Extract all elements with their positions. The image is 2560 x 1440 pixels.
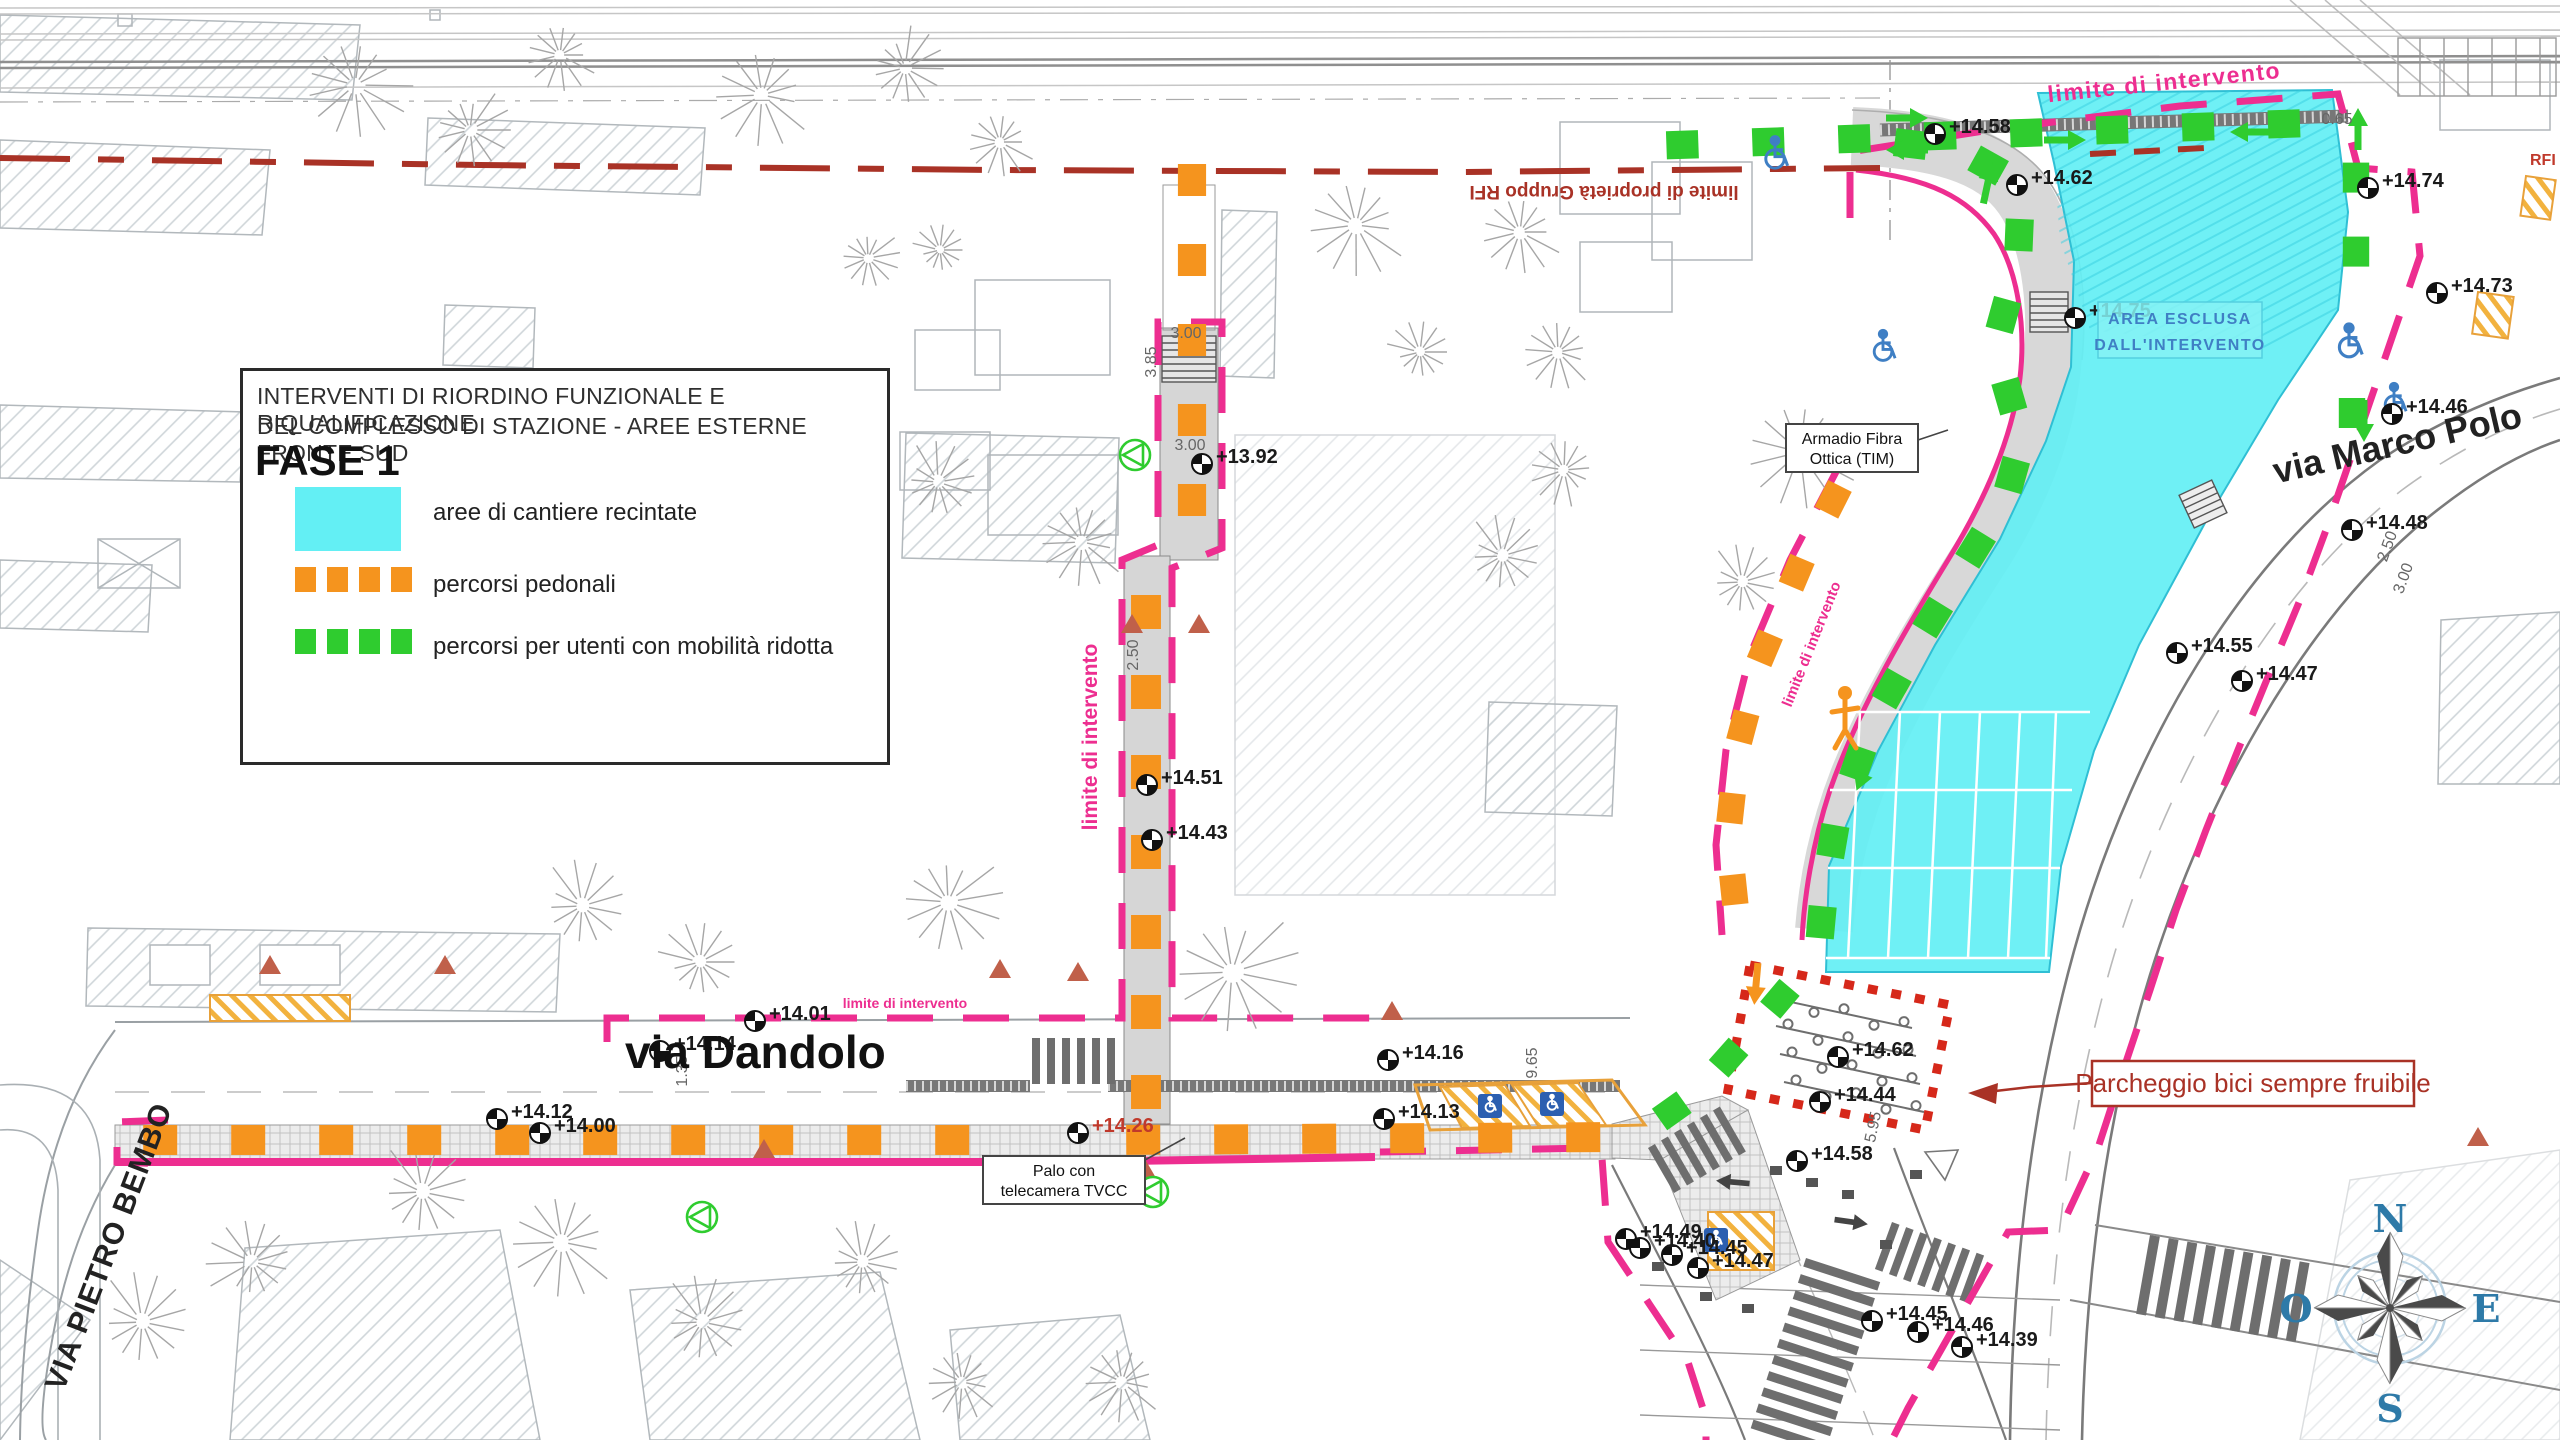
crosswalk: [1032, 1038, 1115, 1084]
compass-e: E: [2472, 1286, 2501, 1331]
orange-path-dash: [671, 1125, 705, 1155]
marker-triangle: [1188, 614, 1210, 633]
crosswalk: [1875, 1222, 1984, 1303]
parcheggio-callout: Parcheggio bici sempre fruibile: [1968, 1061, 2431, 1106]
wheelchair-icon: [1874, 330, 1895, 360]
orange-path-dash: [1747, 629, 1783, 667]
spot-elevation-value: +14.43: [1166, 822, 1228, 844]
green-path-dash: [1709, 1038, 1749, 1078]
orange-path-dash: [1390, 1123, 1424, 1153]
spot-elevation: +14.55: [2167, 635, 2253, 663]
tree-symbol: [844, 237, 900, 286]
intervention-label-corridor: limite di intervento: [1079, 644, 1102, 831]
orange-path-dash: [495, 1125, 529, 1155]
tree-symbol: [906, 865, 1003, 949]
spot-elevation: +14.58: [1787, 1143, 1873, 1171]
orange-path-dash: [1815, 480, 1852, 519]
spot-elevation: +14.44: [1810, 1084, 1897, 1112]
parcheggio-label: Parcheggio bici sempre fruibile: [2075, 1068, 2431, 1098]
street-label-dandolo: via Dandolo: [625, 1026, 886, 1078]
palo-line2: telecamera TVCC: [1001, 1183, 1128, 1200]
legend-item-green-label: percorsi per utenti con mobilità ridotta: [433, 633, 833, 661]
legend-swatch-green-path: [295, 629, 412, 654]
green-path-dash: [2096, 115, 2129, 144]
rfi-label: RFI: [2530, 152, 2556, 169]
green-path-dash: [1666, 130, 1699, 159]
marker-triangle: [1067, 962, 1089, 981]
marker-triangle: [1381, 1001, 1403, 1020]
orange-path-dash: [1131, 995, 1161, 1029]
dimension-label: 3.00: [1174, 437, 1205, 454]
orange-path-dash: [1478, 1123, 1512, 1153]
green-path-dash: [2343, 237, 2369, 267]
tree-symbol: [551, 860, 622, 941]
orange-path-dash: [1779, 554, 1815, 592]
orange-path-dash: [231, 1125, 265, 1155]
area-esclusa-line2: DALL'INTERVENTO: [2094, 337, 2266, 354]
green-marker-icon: [687, 1202, 717, 1232]
orange-path-dash: [935, 1125, 969, 1155]
orange-path-dash: [1131, 675, 1161, 709]
orange-path-dash: [847, 1125, 881, 1155]
tree-symbol: [658, 923, 734, 992]
spot-elevation-value: +14.74: [2382, 170, 2445, 192]
compass-o: O: [2279, 1286, 2312, 1331]
spot-elevation-value: +14.47: [2256, 663, 2318, 685]
dimension-label: 3.00: [1170, 325, 1201, 342]
spot-elevation-value: +14.13: [1398, 1101, 1460, 1123]
orange-path-dash: [407, 1125, 441, 1155]
orange-path-dash: [1726, 709, 1759, 745]
street-label-pietro-bembo: VIA PIETRO BEMBO: [39, 1098, 179, 1394]
legend-swatch-orange-path: [295, 567, 412, 592]
spot-elevation-value: +14.48: [2366, 512, 2428, 534]
green-path-dash: [1816, 823, 1849, 859]
legend-swatch-cyan-area: [295, 487, 401, 551]
site-plan-page: +14.73+14.74+14.48+14.46+14.55+14.47+14.…: [0, 0, 2560, 1440]
tree-symbol: [1525, 323, 1585, 388]
wheelchair-icon: [2339, 324, 2362, 357]
stairs-icon-2: [2030, 292, 2068, 332]
yellow-hatched-area: [2472, 292, 2513, 339]
green-path-dash: [1760, 979, 1800, 1019]
palo-line1: Palo con: [1033, 1163, 1095, 1180]
tree-symbol: [876, 26, 944, 102]
spot-elevation-value: +14.16: [1402, 1042, 1464, 1064]
compass-s: S: [2376, 1386, 2403, 1431]
orange-path-dash: [1716, 792, 1746, 825]
area-esclusa-line1: AREA ESCLUSA: [2108, 311, 2252, 328]
spot-elevation-value: +14.62: [1852, 1039, 1914, 1061]
dimension-label: 0.65: [2321, 111, 2352, 128]
spot-elevation-value: +13.92: [1216, 446, 1278, 468]
green-path-dash: [1806, 905, 1837, 939]
dimension-label: 9.65: [1524, 1047, 1541, 1078]
spot-elevation-value: +14.40: [1654, 1230, 1716, 1252]
tree-symbol: [529, 28, 595, 91]
green-marker-icon: [1120, 440, 1150, 470]
dimension-label: 3.00: [2390, 561, 2417, 596]
legend-phase: FASE 1: [255, 437, 400, 485]
orange-path-dash: [1214, 1124, 1248, 1154]
spot-elevation-value: +14.73: [2451, 275, 2513, 297]
spot-elevation-value: +14.55: [2191, 635, 2253, 657]
marker-triangle: [2467, 1127, 2489, 1146]
orange-path-dash: [1719, 873, 1748, 906]
green-path-dash: [2010, 118, 2043, 147]
orange-path-dash: [1178, 244, 1206, 276]
spot-elevation-value: +14.00: [554, 1115, 616, 1137]
orange-path-dash: [1178, 164, 1206, 196]
spot-elevation: +14.74: [2358, 170, 2445, 198]
spot-elevation-value: +14.01: [769, 1003, 831, 1025]
spot-elevation-value: +14.44: [1834, 1084, 1897, 1106]
orange-path-dash: [1302, 1124, 1336, 1154]
green-path-dash: [2182, 112, 2215, 141]
armadio-line1: Armadio Fibra: [1802, 431, 1903, 448]
spot-elevation-value: +14.39: [1976, 1329, 2038, 1351]
tree-symbol: [109, 1272, 186, 1360]
spot-elevation: +14.16: [1378, 1042, 1464, 1070]
tree-symbol: [913, 225, 963, 270]
spot-elevation-value: +14.51: [1161, 767, 1223, 789]
green-path-dash: [1838, 124, 1871, 153]
orange-path-dash: [1131, 1075, 1161, 1109]
tree-symbol: [1387, 322, 1447, 376]
green-path-dash: [2004, 218, 2033, 251]
green-path-dash: [2268, 109, 2301, 138]
armadio-callout: Armadio Fibra Ottica (TIM): [1786, 424, 1948, 472]
green-path-dash: [1986, 296, 2022, 334]
orange-path-dash: [1178, 484, 1206, 516]
spot-elevation-value: +14.58: [1949, 116, 2011, 138]
legend-item-orange-label: percorsi pedonali: [433, 571, 616, 599]
marker-triangle: [989, 959, 1011, 978]
yellow-hatched-area: [2520, 176, 2555, 220]
path-arrow-icon: [1833, 1212, 1868, 1233]
property-line-label: limite di proprietà Gruppo RFI: [1469, 181, 1738, 202]
spot-elevation-value: +14.58: [1811, 1143, 1873, 1165]
spot-elevation-value: +14.26: [1092, 1115, 1154, 1137]
orange-path-dash: [1566, 1122, 1600, 1152]
yellow-hatched-area: [210, 995, 350, 1021]
tree-symbol: [513, 1199, 607, 1296]
legend-item-cyan-label: aree di cantiere recintate: [433, 499, 697, 527]
spot-elevation-value: +14.62: [2031, 167, 2093, 189]
compass-n: N: [2373, 1196, 2408, 1241]
intervention-label-diagonal: limite di intervento: [1779, 579, 1845, 709]
orange-path-dash: [319, 1125, 353, 1155]
tree-symbol: [1717, 545, 1774, 611]
tree-symbol: [1484, 201, 1559, 273]
area-esclusa-callout: AREA ESCLUSA DALL'INTERVENTO: [2094, 302, 2266, 358]
dimension-label: 3.85: [1143, 346, 1160, 377]
tree-symbol: [1311, 186, 1401, 276]
crosswalk: [1751, 1258, 1880, 1440]
legend-box: INTERVENTI DI RIORDINO FUNZIONALE E RIQU…: [240, 368, 890, 765]
armadio-line2: Ottica (TIM): [1810, 451, 1894, 468]
spot-elevation: +14.62: [1828, 1039, 1914, 1067]
orange-path-dash: [1178, 404, 1206, 436]
intervention-label-dandolo: limite di intervento: [843, 995, 967, 1011]
spot-elevation-value: +14.47: [1712, 1250, 1774, 1272]
orange-path-dash: [1131, 915, 1161, 949]
dimension-label: 2.50: [1125, 639, 1142, 670]
